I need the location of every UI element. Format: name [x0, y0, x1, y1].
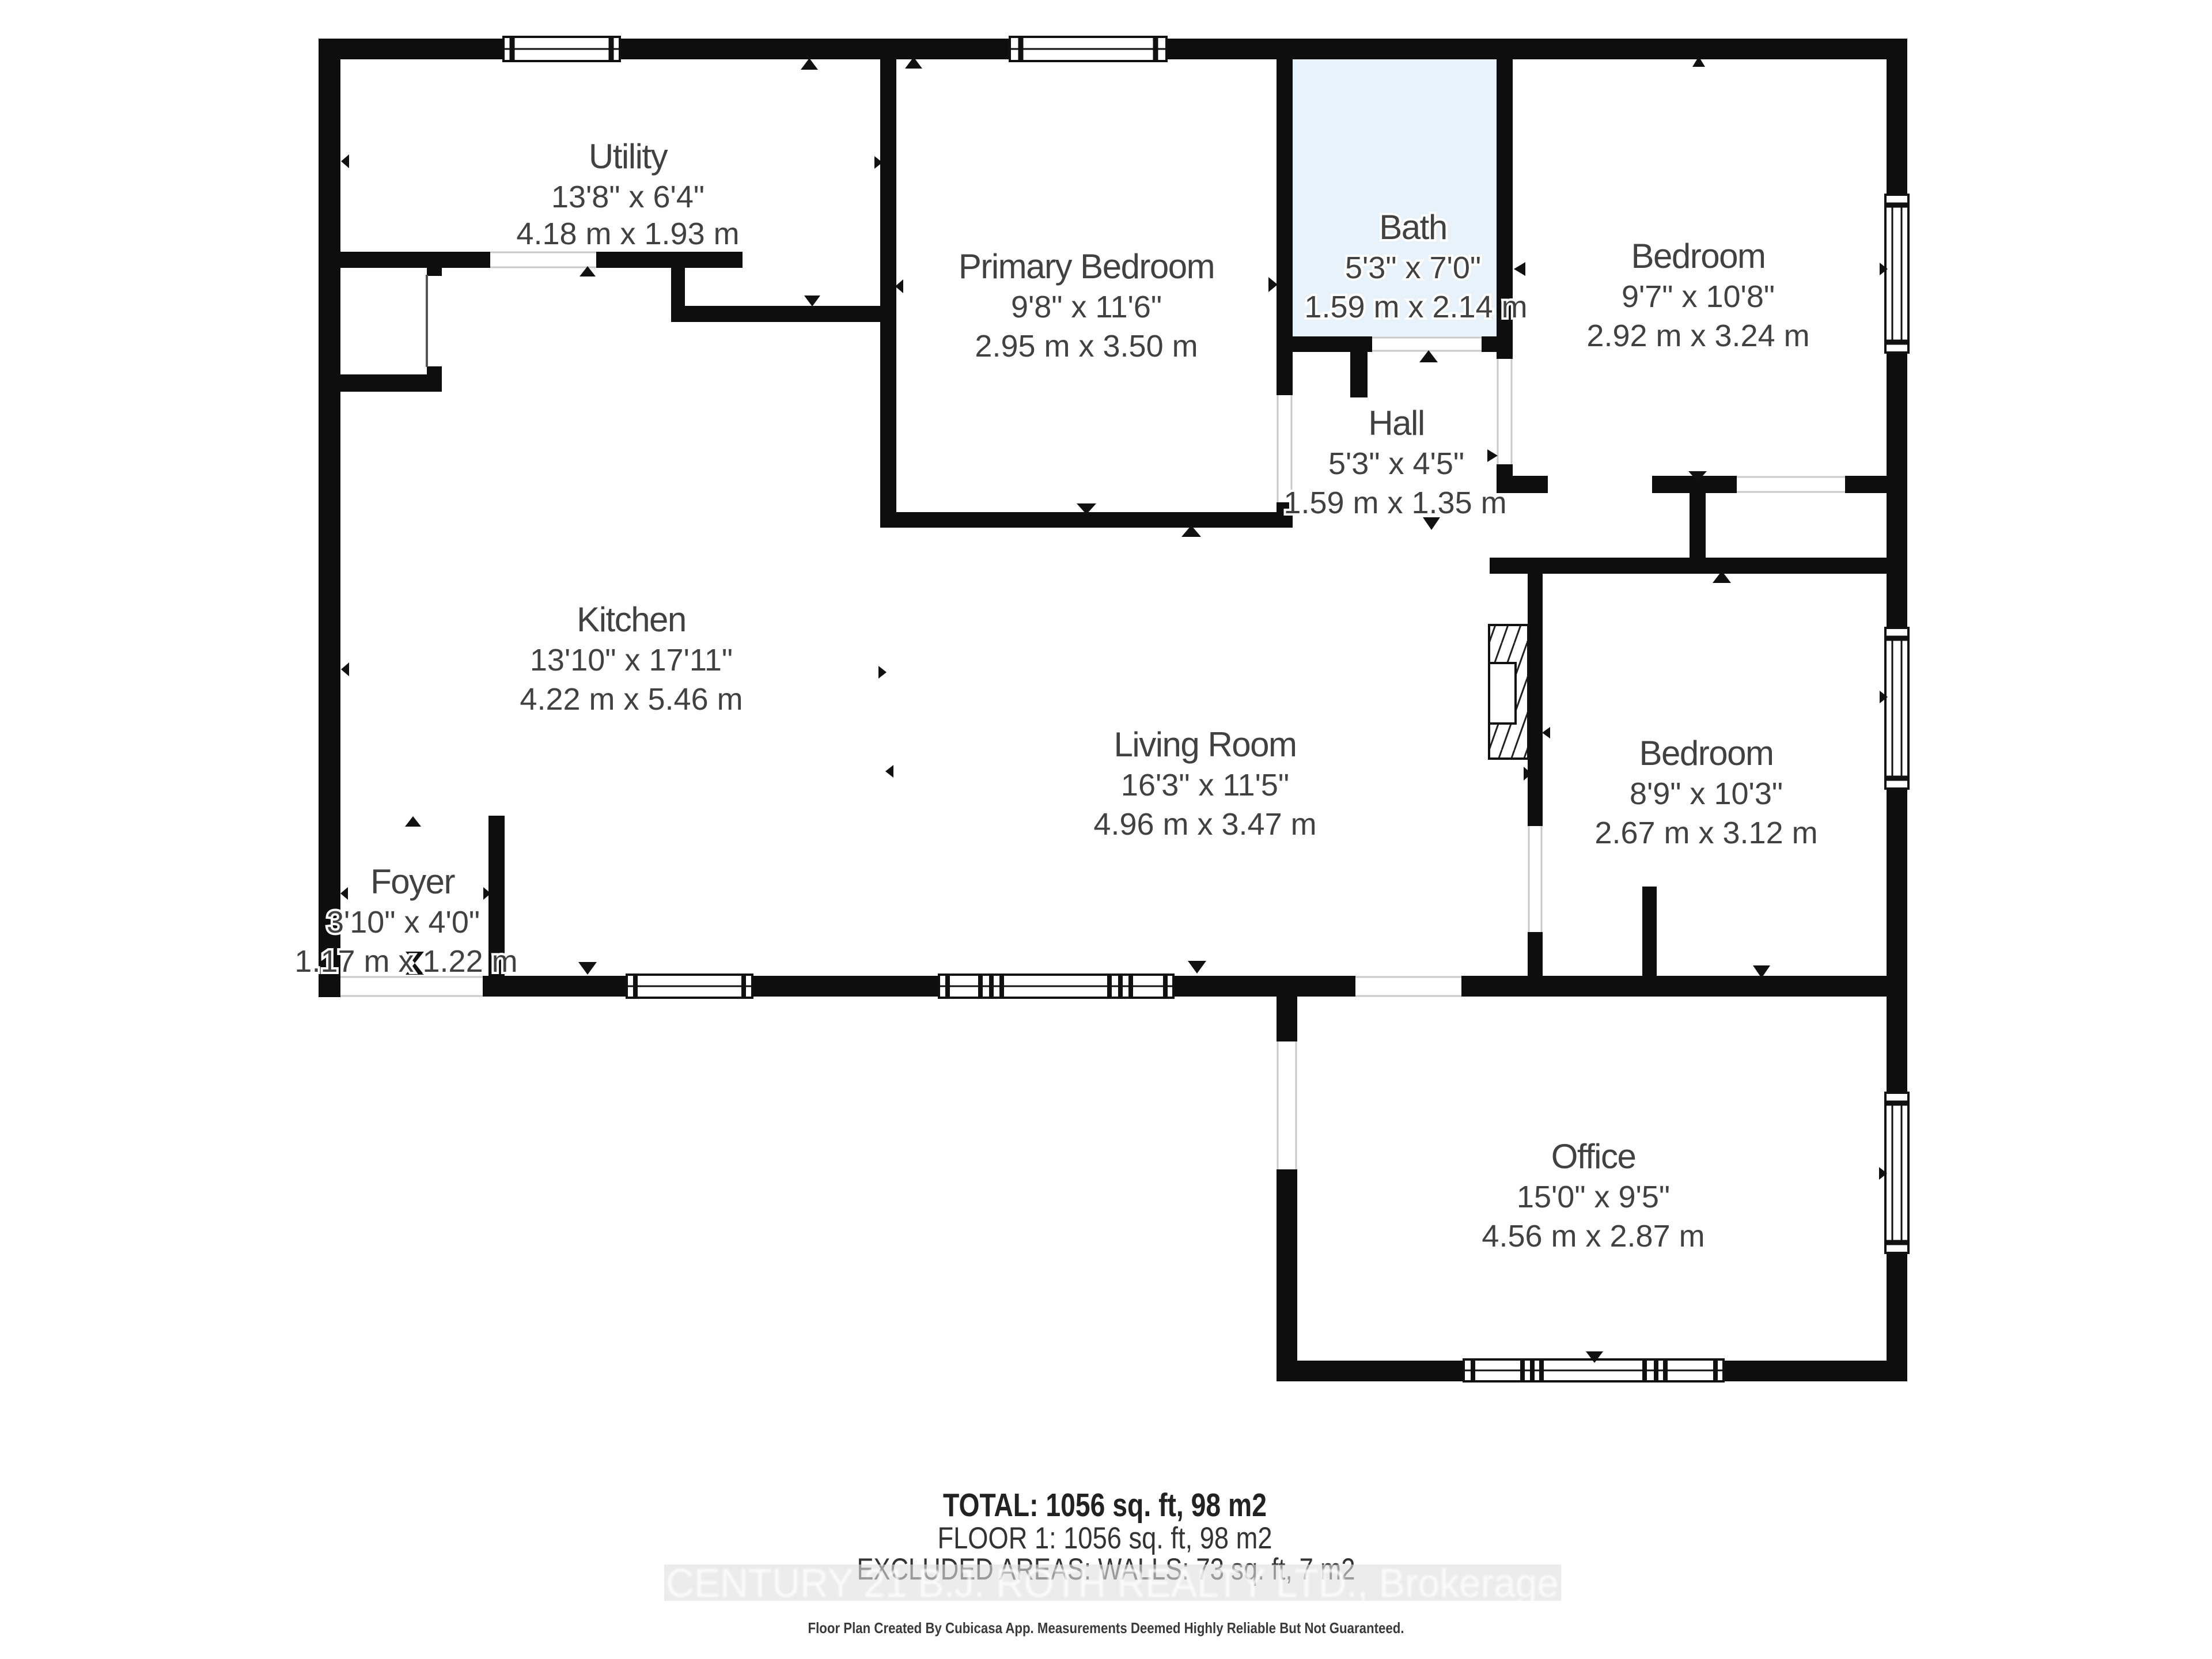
svg-text:Foyer: Foyer — [370, 862, 454, 901]
svg-text:Utility: Utility — [589, 137, 668, 176]
svg-text:CENTURY 21 B.J. ROTH REALTY LT: CENTURY 21 B.J. ROTH REALTY LTD., Broker… — [666, 1560, 1559, 1605]
svg-text:FLOOR 1: 1056 sq. ft, 98 m2: FLOOR 1: 1056 sq. ft, 98 m2 — [938, 1521, 1272, 1555]
svg-text:1.59 m x 1.35 m: 1.59 m x 1.35 m — [1283, 486, 1506, 520]
svg-text:5'3" x 4'5": 5'3" x 4'5" — [1328, 446, 1464, 481]
svg-text:Living Room: Living Room — [1114, 725, 1297, 764]
svg-text:4.56 m x 2.87 m: 4.56 m x 2.87 m — [1482, 1219, 1705, 1253]
svg-text:2.67 m x 3.12 m: 2.67 m x 3.12 m — [1594, 816, 1817, 850]
svg-text:Kitchen: Kitchen — [577, 600, 686, 639]
svg-text:9'7" x 10'8": 9'7" x 10'8" — [1622, 279, 1775, 314]
svg-text:9'8" x 11'6": 9'8" x 11'6" — [1011, 290, 1162, 324]
svg-text:Primary Bedroom: Primary Bedroom — [959, 247, 1214, 286]
svg-text:8'9" x 10'3": 8'9" x 10'3" — [1630, 777, 1783, 811]
svg-text:Hall: Hall — [1368, 404, 1424, 442]
svg-text:1.59 m x 2.14 m: 1.59 m x 2.14 m — [1304, 290, 1527, 324]
svg-text:Bedroom: Bedroom — [1631, 237, 1766, 275]
svg-text:3'10" x 4'0": 3'10" x 4'0" — [327, 905, 480, 940]
svg-text:15'0" x 9'5": 15'0" x 9'5" — [1517, 1180, 1670, 1214]
svg-text:1.17 m x 1.22 m: 1.17 m x 1.22 m — [294, 944, 517, 979]
svg-text:4.96 m x 3.47 m: 4.96 m x 3.47 m — [1093, 807, 1316, 842]
svg-text:4.18 m x 1.93 m: 4.18 m x 1.93 m — [516, 217, 739, 251]
svg-text:Office: Office — [1551, 1137, 1636, 1176]
svg-text:13'10" x 17'11": 13'10" x 17'11" — [530, 643, 733, 677]
svg-text:Floor Plan Created By Cubicasa: Floor Plan Created By Cubicasa App. Meas… — [808, 1619, 1404, 1637]
svg-text:5'3" x 7'0": 5'3" x 7'0" — [1345, 251, 1481, 285]
svg-text:TOTAL: 1056 sq. ft, 98 m2: TOTAL: 1056 sq. ft, 98 m2 — [943, 1487, 1267, 1524]
svg-text:2.95 m x 3.50 m: 2.95 m x 3.50 m — [975, 329, 1198, 363]
svg-text:16'3" x 11'5": 16'3" x 11'5" — [1121, 768, 1289, 802]
svg-text:13'8" x 6'4": 13'8" x 6'4" — [551, 180, 704, 214]
svg-text:4.22 m x 5.46 m: 4.22 m x 5.46 m — [520, 682, 743, 717]
svg-text:2.92 m x 3.24 m: 2.92 m x 3.24 m — [1586, 319, 1809, 353]
svg-text:Bath: Bath — [1379, 208, 1446, 247]
svg-text:Bedroom: Bedroom — [1639, 734, 1774, 772]
